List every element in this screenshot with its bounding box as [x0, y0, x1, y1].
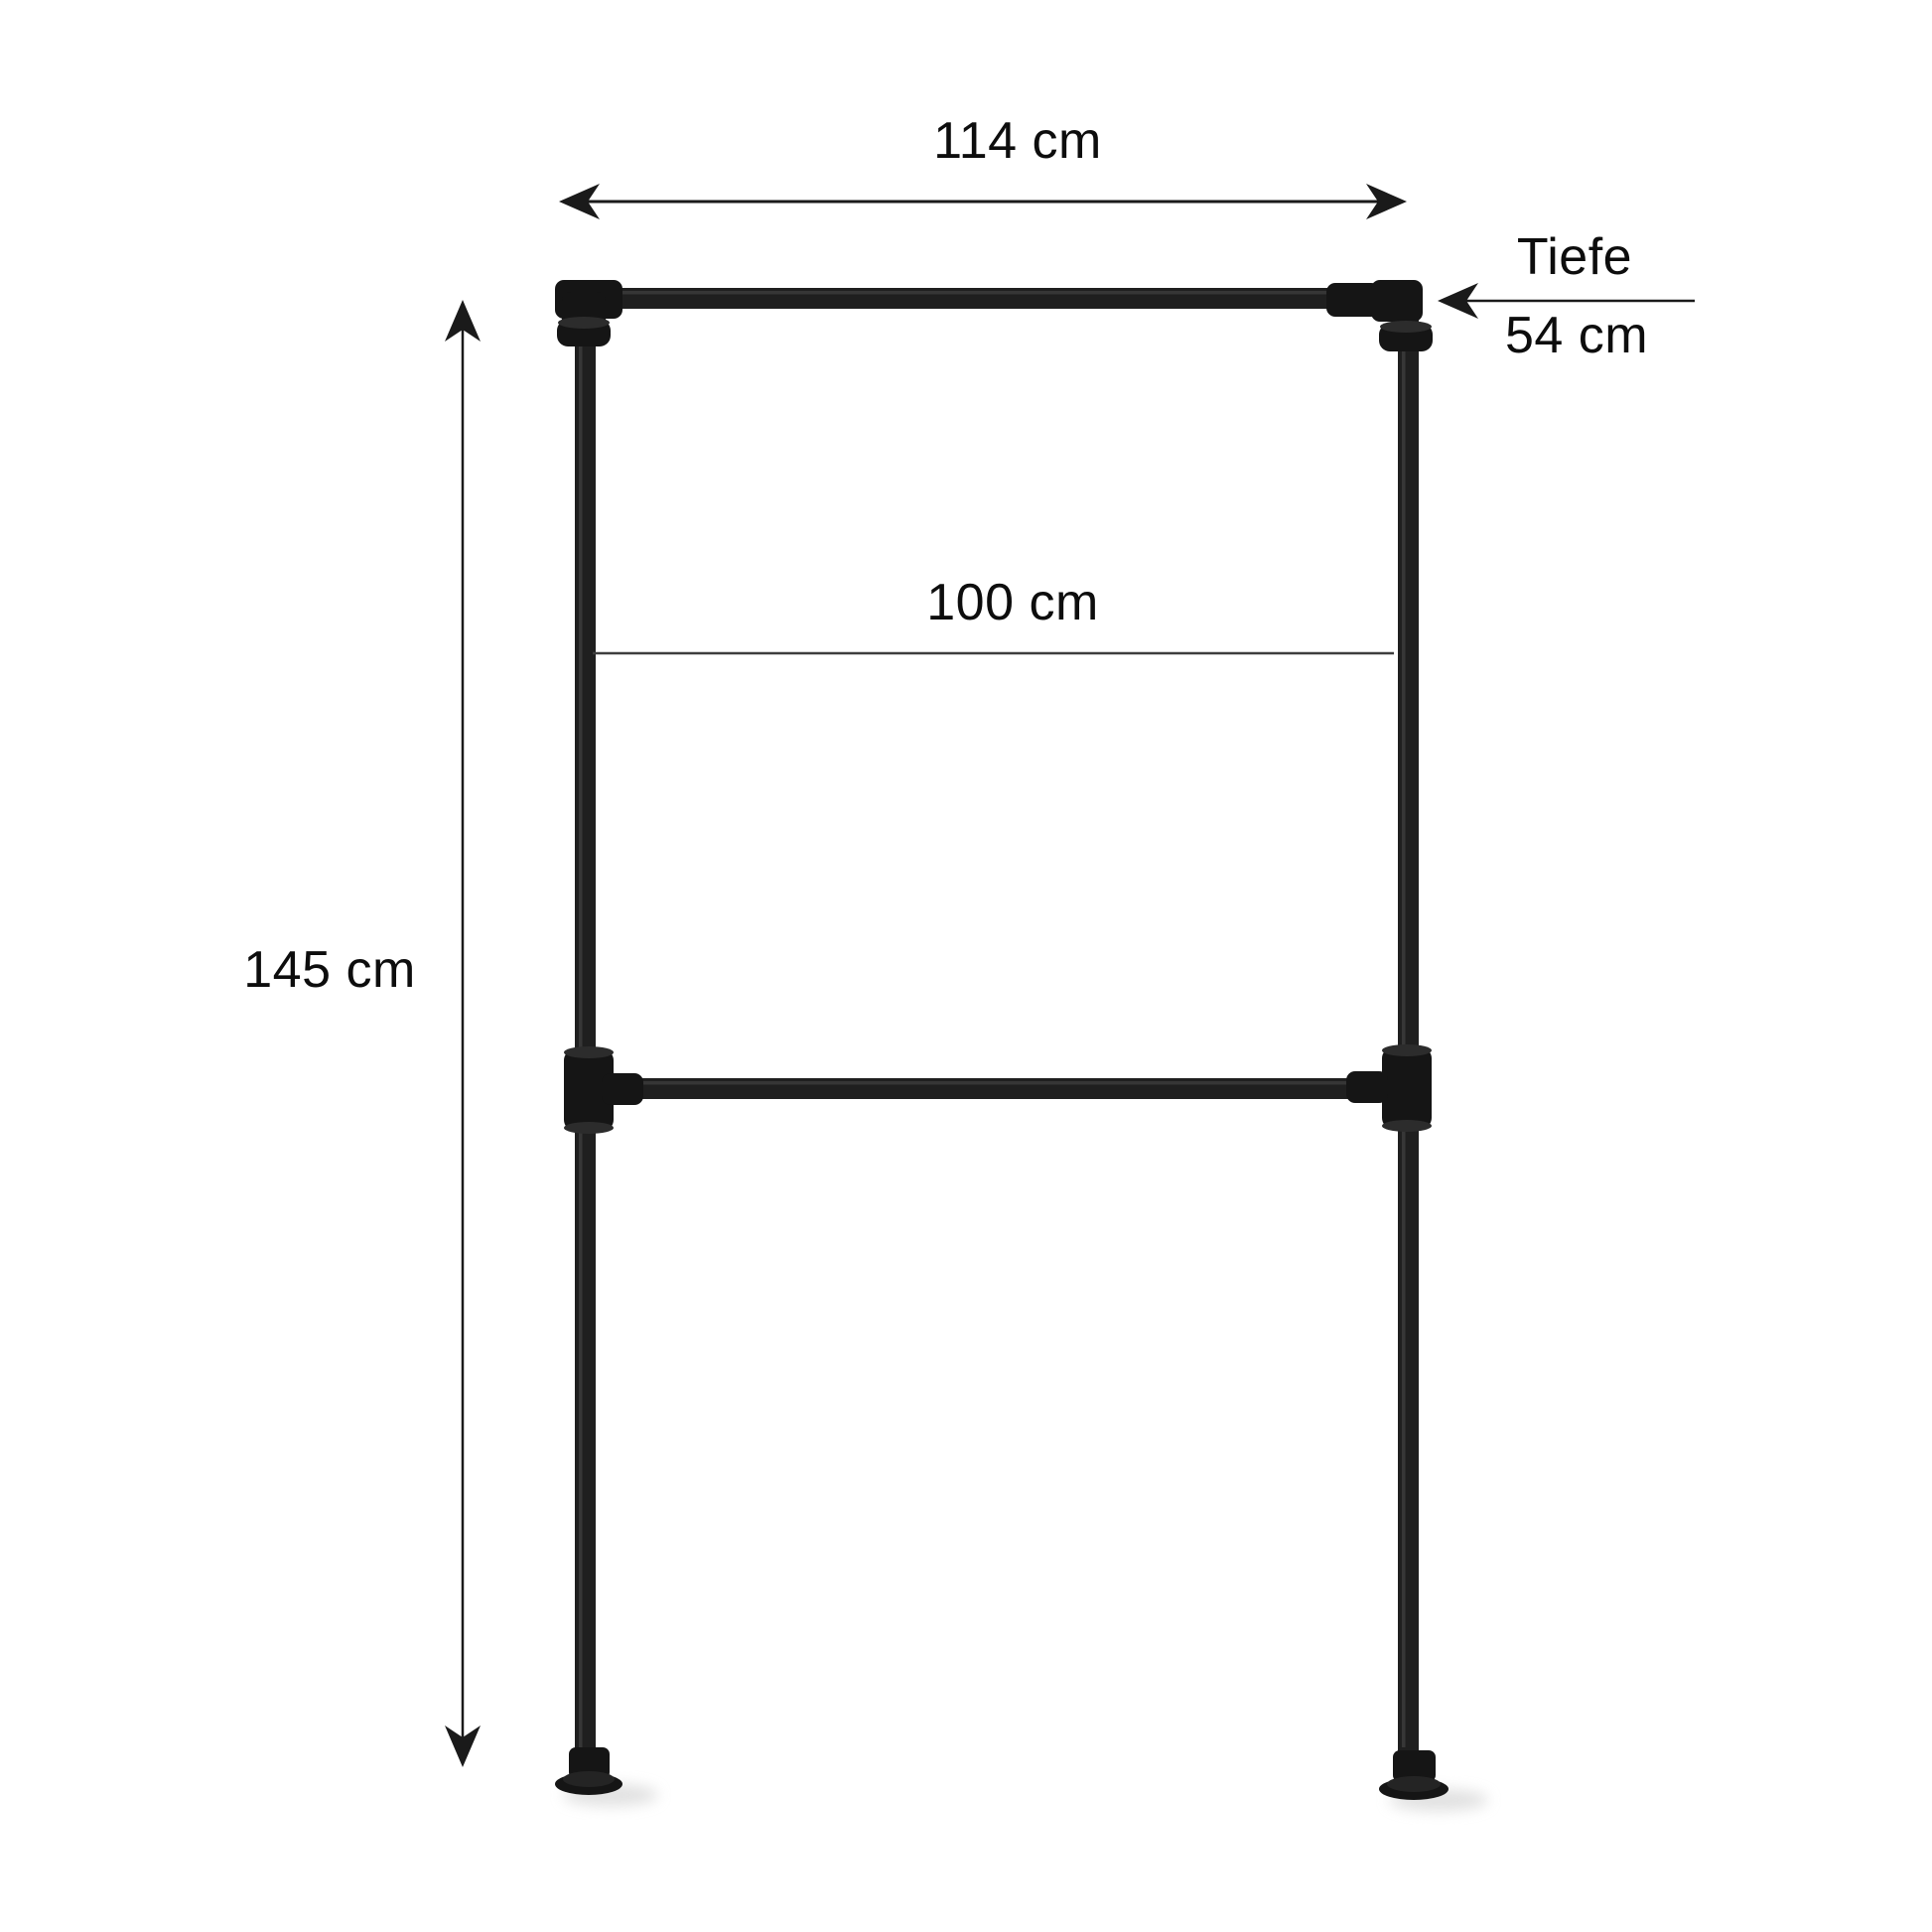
left-post-highlight [579, 308, 583, 1747]
left-foot-flange [555, 1747, 622, 1795]
product-dimension-diagram: 114 cm Tiefe 54 cm 100 cm 145 cm [0, 0, 1932, 1932]
left-post [575, 298, 596, 1759]
height-dimension-label: 145 cm [243, 944, 416, 996]
right-post [1398, 298, 1419, 1759]
width-dimension-label: 114 cm [933, 115, 1102, 167]
middle-rail-highlight [625, 1081, 1370, 1085]
right-foot-flange [1379, 1750, 1449, 1800]
right-post-highlight [1402, 308, 1406, 1747]
top-bar-highlight [606, 291, 1380, 295]
rail-dimension-label: 100 cm [926, 577, 1099, 628]
depth-dimension-name-label: Tiefe [1517, 231, 1632, 283]
middle-left-tee-fitting [564, 1046, 643, 1134]
width-dimension-arrow [559, 184, 1407, 219]
middle-right-tee-fitting [1346, 1044, 1432, 1132]
height-dimension-arrow [445, 300, 481, 1767]
top-right-elbow-fitting [1326, 280, 1433, 351]
top-left-elbow-fitting [555, 280, 622, 346]
depth-dimension-value-label: 54 cm [1505, 310, 1648, 361]
